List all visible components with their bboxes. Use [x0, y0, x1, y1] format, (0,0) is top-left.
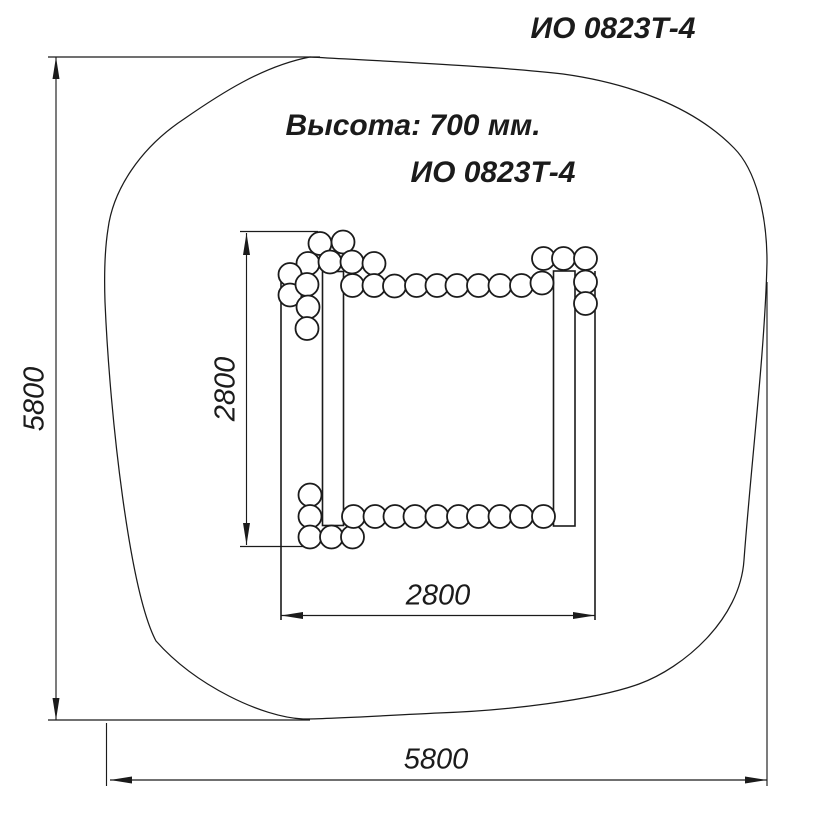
log-circle — [319, 251, 342, 274]
log-circle — [574, 292, 597, 315]
log-circle — [320, 526, 343, 549]
dimension-arrow — [745, 777, 767, 784]
dimension-frame-width: 2800 — [406, 582, 471, 611]
drawing-sheet: ИО 0823Т-4 Высота: 700 мм. ИО 0823Т-4 58… — [0, 0, 832, 821]
log-circle — [341, 526, 364, 549]
dimension-arrow — [53, 698, 60, 720]
dimension-arrow — [110, 777, 132, 784]
log-circle — [426, 505, 449, 528]
model-code-label: ИО 0823Т-4 — [411, 158, 576, 188]
log-circle — [383, 275, 406, 298]
log-circle — [405, 274, 428, 297]
log-circle — [341, 251, 364, 274]
log-circle — [296, 317, 319, 340]
dimension-safety-zone-width: 5800 — [404, 746, 469, 775]
log-circle — [299, 505, 322, 528]
log-circle — [489, 274, 512, 297]
frame-post — [554, 271, 576, 526]
dimension-arrow — [281, 612, 303, 619]
log-circle — [552, 247, 575, 270]
log-circle — [574, 271, 597, 294]
log-circle — [297, 296, 320, 319]
drawing-code-label: ИО 0823Т-4 — [531, 14, 696, 44]
log-circle — [467, 505, 490, 528]
log-circle — [299, 526, 322, 549]
frame-post — [323, 272, 344, 526]
log-circle — [446, 274, 469, 297]
dimension-arrow — [243, 523, 250, 545]
dimension-safety-zone-height: 5800 — [21, 367, 50, 432]
log-circle — [574, 247, 597, 270]
dimension-arrow — [573, 612, 595, 619]
log-circle — [467, 274, 490, 297]
log-circle — [342, 505, 365, 528]
log-circle — [296, 273, 319, 296]
log-circle — [299, 484, 322, 507]
log-circle — [510, 505, 533, 528]
height-note-label: Высота: 700 мм. — [285, 111, 540, 141]
log-circle — [489, 505, 512, 528]
log-circle — [363, 252, 386, 275]
log-circle — [531, 272, 554, 295]
log-circle — [404, 505, 427, 528]
log-circle — [363, 274, 386, 297]
log-circle — [532, 505, 555, 528]
dimension-arrow — [53, 57, 60, 79]
dimension-arrow — [243, 233, 250, 255]
dimension-frame-height: 2800 — [212, 357, 241, 422]
log-circle — [341, 274, 364, 297]
log-circle — [510, 274, 533, 297]
